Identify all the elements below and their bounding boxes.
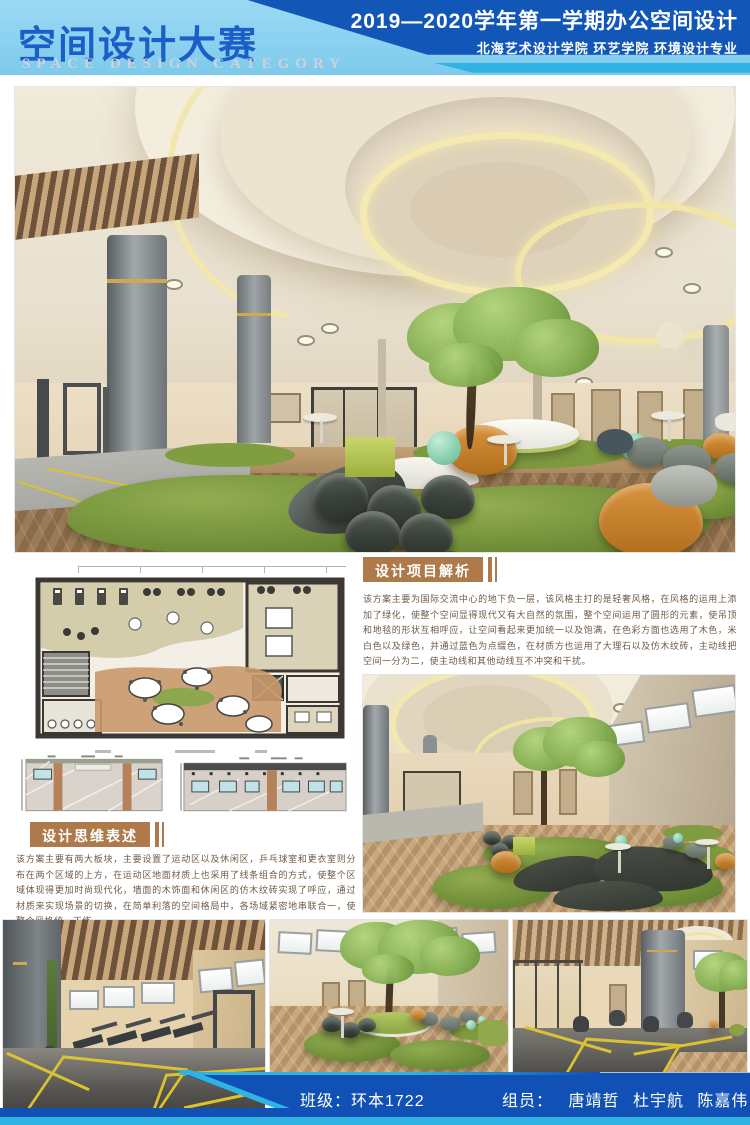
tree-canopy: [429, 343, 503, 387]
members-line: 组员： 唐靖哲 杜宇航 陈嘉伟 伍毅: [502, 1087, 750, 1111]
member-name: 陈嘉伟: [697, 1093, 748, 1110]
poster-subtitle: SPACE DESIGN CATEGORY: [22, 56, 346, 73]
header-right-block: 2019—2020学年第一学期办公空间设计 北海艺术设计学院 环艺学院 环境设计…: [351, 5, 738, 57]
lime-table: [513, 837, 535, 855]
plan-caption-dash: [95, 750, 111, 753]
pouf: [358, 1018, 376, 1032]
clerestory-window: [234, 959, 265, 988]
class-label: 班级：环本1722: [300, 1087, 425, 1111]
pouf: [322, 1016, 342, 1032]
wall-elevation-drawing: [180, 755, 350, 817]
orange-pouf: [715, 853, 735, 869]
gym-machine: [103, 387, 109, 453]
green-sofa: [478, 1020, 508, 1046]
member-name: 杜宇航: [633, 1093, 684, 1110]
heading-accent-line: [155, 822, 159, 847]
clerestory-window: [141, 982, 175, 1004]
lounge-render-image: [270, 920, 508, 1072]
gym-machine: [63, 383, 101, 455]
pedestal-table: [695, 839, 719, 845]
gold-trim: [13, 962, 27, 965]
analysis-body-text: 该方案主要为国际交流中心的地下负一层，该风格主打的是轻奢风格，在风格的运用上添加…: [363, 592, 737, 670]
plan-caption-dash: [175, 750, 215, 753]
footer-top-accent: [180, 1072, 600, 1075]
door: [559, 769, 577, 815]
gray-pouf: [440, 1016, 460, 1031]
clerestory-window: [103, 986, 135, 1008]
ceiling-spotlight: [683, 283, 701, 294]
secondary-render-image: [363, 675, 735, 912]
tree-canopy: [573, 741, 625, 777]
member-name: 唐靖哲: [568, 1093, 619, 1110]
gray-pouf: [685, 843, 707, 858]
ceiling-spotlight: [655, 247, 673, 258]
marble-column: [107, 235, 167, 470]
footer-cyan-strip: [0, 1117, 750, 1125]
pilaster: [378, 339, 386, 439]
door: [513, 771, 533, 815]
heading-accent-line: [495, 557, 497, 582]
concept-section-heading: 设计思维表述: [30, 822, 164, 847]
exercise-bike: [573, 1016, 589, 1032]
pedestal-table: [303, 413, 337, 422]
pedestal-table: [328, 1008, 354, 1015]
gym2-render-image: [513, 920, 747, 1072]
tree-trunk: [541, 771, 547, 827]
plan-caption-dash: [255, 750, 267, 753]
header-banner: 空间设计大赛 SPACE DESIGN CATEGORY 2019—2020学年…: [0, 0, 750, 75]
ceiling-spotlight: [297, 335, 315, 346]
pedestal-table: [487, 435, 521, 444]
school-line: 北海艺术设计学院 环艺学院 环境设计专业: [351, 38, 738, 57]
pedestal-table: [651, 411, 685, 420]
grass-rug: [390, 1040, 490, 1070]
concrete-table: [651, 465, 717, 507]
competition-poster: 空间设计大赛 SPACE DESIGN CATEGORY 2019—2020学年…: [0, 0, 750, 1125]
tree-canopy: [719, 960, 747, 990]
tree-canopy: [362, 954, 414, 984]
ceiling-spotlight: [165, 279, 183, 290]
exercise-bike: [677, 1012, 693, 1028]
teal-pouf: [597, 429, 633, 455]
concept-heading-box: 设计思维表述: [30, 822, 150, 847]
concept-body-text: 该方案主要有两大板块，主要设置了运动区以及休闲区，乒乓球室和更衣室则分布在两个区…: [16, 852, 356, 930]
orange-pouf: [709, 1020, 719, 1028]
grass-rug: [165, 443, 295, 467]
tree-canopy: [513, 319, 599, 377]
heading-accent-line: [162, 822, 164, 847]
analysis-section-heading: 设计项目解析: [363, 557, 497, 582]
analysis-heading-box: 设计项目解析: [363, 557, 483, 582]
dimension-ticks: [78, 566, 346, 573]
tree-canopy: [420, 936, 480, 976]
heading-accent-line: [488, 557, 492, 582]
pedestal-table: [605, 843, 631, 850]
gold-trim: [647, 950, 677, 952]
gym-machine: [37, 379, 49, 459]
ceiling-spotlight: [321, 323, 339, 334]
gold-trim: [107, 279, 167, 283]
mint-ball: [466, 1020, 476, 1030]
marble-column: [237, 275, 271, 443]
clerestory-window: [691, 684, 735, 718]
mint-ball: [427, 431, 461, 465]
term-line: 2019—2020学年第一学期办公空间设计: [351, 5, 738, 35]
main-render-image: [15, 87, 735, 552]
mint-ball: [673, 833, 683, 843]
members-label: 组员：: [502, 1093, 553, 1110]
exercise-bike: [609, 1010, 625, 1026]
footer-banner: 班级：环本1722 组员： 唐靖哲 杜宇航 陈嘉伟 伍毅: [0, 1070, 750, 1125]
plan-room-right: [247, 583, 339, 671]
green-pouf: [729, 1024, 745, 1036]
exercise-bike: [643, 1016, 659, 1032]
wall-elevation-drawing: [20, 755, 168, 817]
gold-trim: [237, 313, 271, 316]
clerestory-window: [277, 931, 312, 955]
lime-table: [345, 437, 395, 477]
clerestory-window: [69, 990, 99, 1010]
white-sofa: [715, 413, 735, 431]
orange-pouf: [410, 1008, 426, 1020]
floor-plan-drawing: [35, 576, 345, 744]
